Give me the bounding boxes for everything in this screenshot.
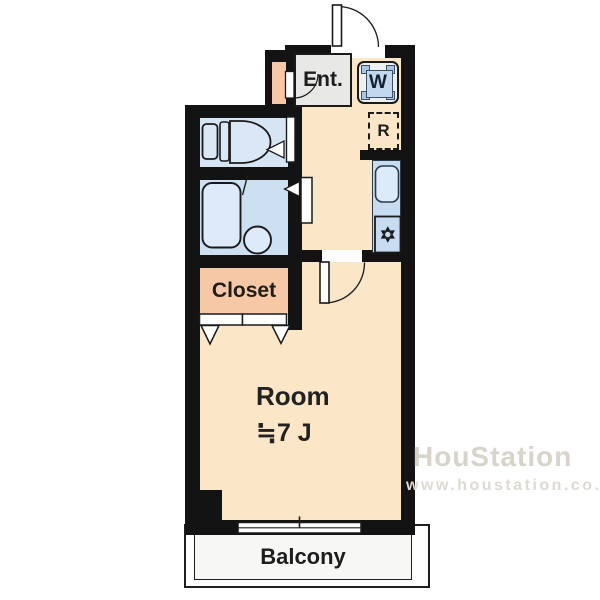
bathroom-floor (200, 180, 288, 255)
wall-corner-pillar (188, 490, 222, 535)
closet-label: Closet (200, 277, 288, 305)
watermark-url: www.houstation.co.jp (406, 477, 600, 495)
pipe-shaft (272, 62, 286, 104)
kitchen-counter (372, 160, 401, 253)
entrance-label: Ent. (303, 68, 343, 92)
balcony-label: Balcony (260, 544, 346, 570)
balcony-area: Balcony (194, 534, 412, 580)
refrigerator-label: R (377, 121, 389, 141)
wall-mid-vertical (288, 105, 302, 330)
floorplan-canvas: Balcony Ent. W R (0, 0, 600, 600)
toilet-room-floor (200, 118, 288, 167)
watermark-logo: HouStation (413, 441, 572, 473)
room-label: Room (256, 383, 330, 409)
wall-bath-closet (185, 255, 302, 268)
washer-icon: W (357, 61, 399, 104)
room-door-opening (322, 250, 362, 262)
washer-label: W (359, 63, 397, 102)
entrance-area: Ent. (294, 53, 352, 107)
room-label-block: Room ≒7 J (256, 383, 330, 446)
wall-toilet-bath (185, 167, 302, 180)
wall-kitchen-stub (360, 150, 401, 160)
entrance-door-icon (333, 5, 379, 47)
room-size-label: ≒7 J (256, 421, 330, 446)
refrigerator-box: R (368, 112, 399, 150)
wall-room-top-left (302, 250, 322, 262)
